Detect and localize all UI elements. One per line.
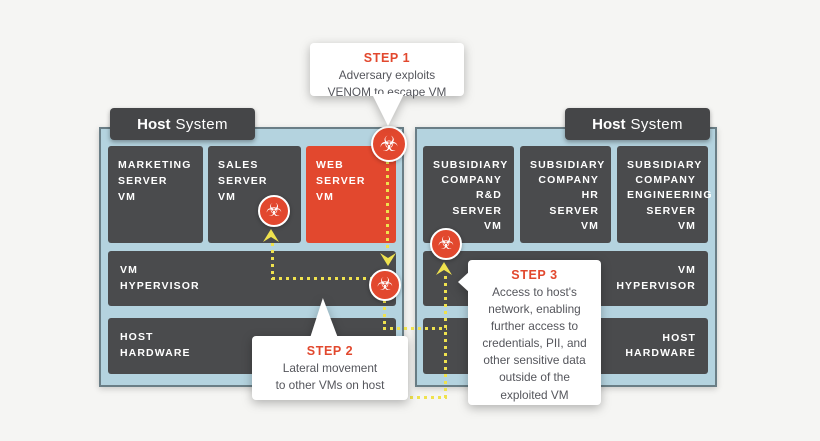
callout-pointer-up [310, 298, 338, 338]
biohazard-glyph: ☣ [377, 276, 393, 294]
vm-subsidiary-engineering-server: SUBSIDIARY COMPANY ENGINEERING SERVER VM [617, 146, 708, 243]
vm-subsidiary-hr-label: SUBSIDIARY COMPANY HR SERVER VM [520, 146, 611, 246]
attack-path-vm-escape [386, 161, 389, 252]
biohazard-icon: ☣ [430, 228, 462, 260]
vm-subsidiary-hr-server: SUBSIDIARY COMPANY HR SERVER VM [520, 146, 611, 243]
vm-marketing-server-label: MARKETING SERVER VM [108, 146, 203, 217]
biohazard-icon: ☣ [258, 195, 290, 227]
vm-subsidiary-engineering-label: SUBSIDIARY COMPANY ENGINEERING SERVER VM [617, 146, 708, 246]
host-label-regular: System [175, 116, 227, 133]
biohazard-glyph: ☣ [438, 235, 454, 253]
vm-sales-server: SALES SERVER VM [208, 146, 301, 243]
host-label-bold: Host [592, 116, 625, 133]
callout-step-2: STEP 2 Lateral movement to other VMs on … [252, 298, 408, 400]
callout-pointer-down [372, 94, 404, 126]
hypervisor-left-label: VM HYPERVISOR [120, 263, 200, 295]
step-2-body: Lateral movement to other VMs on host [256, 360, 404, 394]
vm-marketing-server: MARKETING SERVER VM [108, 146, 203, 243]
attack-path-to-sales-vm [271, 243, 274, 280]
host-hardware-right-label: HOST HARDWARE [625, 331, 696, 361]
attack-path-to-subsidiary [444, 276, 447, 399]
venom-attack-diagram: Host System MARKETING SERVER VM SALES SE… [0, 0, 820, 441]
hypervisor-right-label: VM HYPERVISOR [616, 263, 696, 293]
step-1-title: STEP 1 [314, 51, 460, 65]
vm-subsidiary-rnd-server: SUBSIDIARY COMPANY R&D SERVER VM [423, 146, 514, 243]
host-system-right-label: Host System [565, 108, 710, 140]
biohazard-icon: ☣ [371, 126, 407, 162]
biohazard-glyph: ☣ [380, 134, 399, 155]
biohazard-glyph: ☣ [266, 202, 282, 220]
host-label-bold: Host [137, 116, 170, 133]
callout-step-1: STEP 1 Adversary exploits VENOM to escap… [310, 43, 464, 128]
host-hardware-left-label: HOST HARDWARE [120, 330, 191, 362]
callout-step-3: STEP 3 Access to host's network, enablin… [457, 260, 601, 405]
step-2-title: STEP 2 [256, 344, 404, 358]
biohazard-icon: ☣ [369, 269, 401, 301]
host-system-left-label: Host System [110, 108, 255, 140]
step-3-title: STEP 3 [472, 268, 597, 282]
step-3-body: Access to host's network, enabling furth… [472, 284, 597, 404]
attack-path-lateral [272, 277, 372, 280]
host-label-regular: System [630, 116, 682, 133]
